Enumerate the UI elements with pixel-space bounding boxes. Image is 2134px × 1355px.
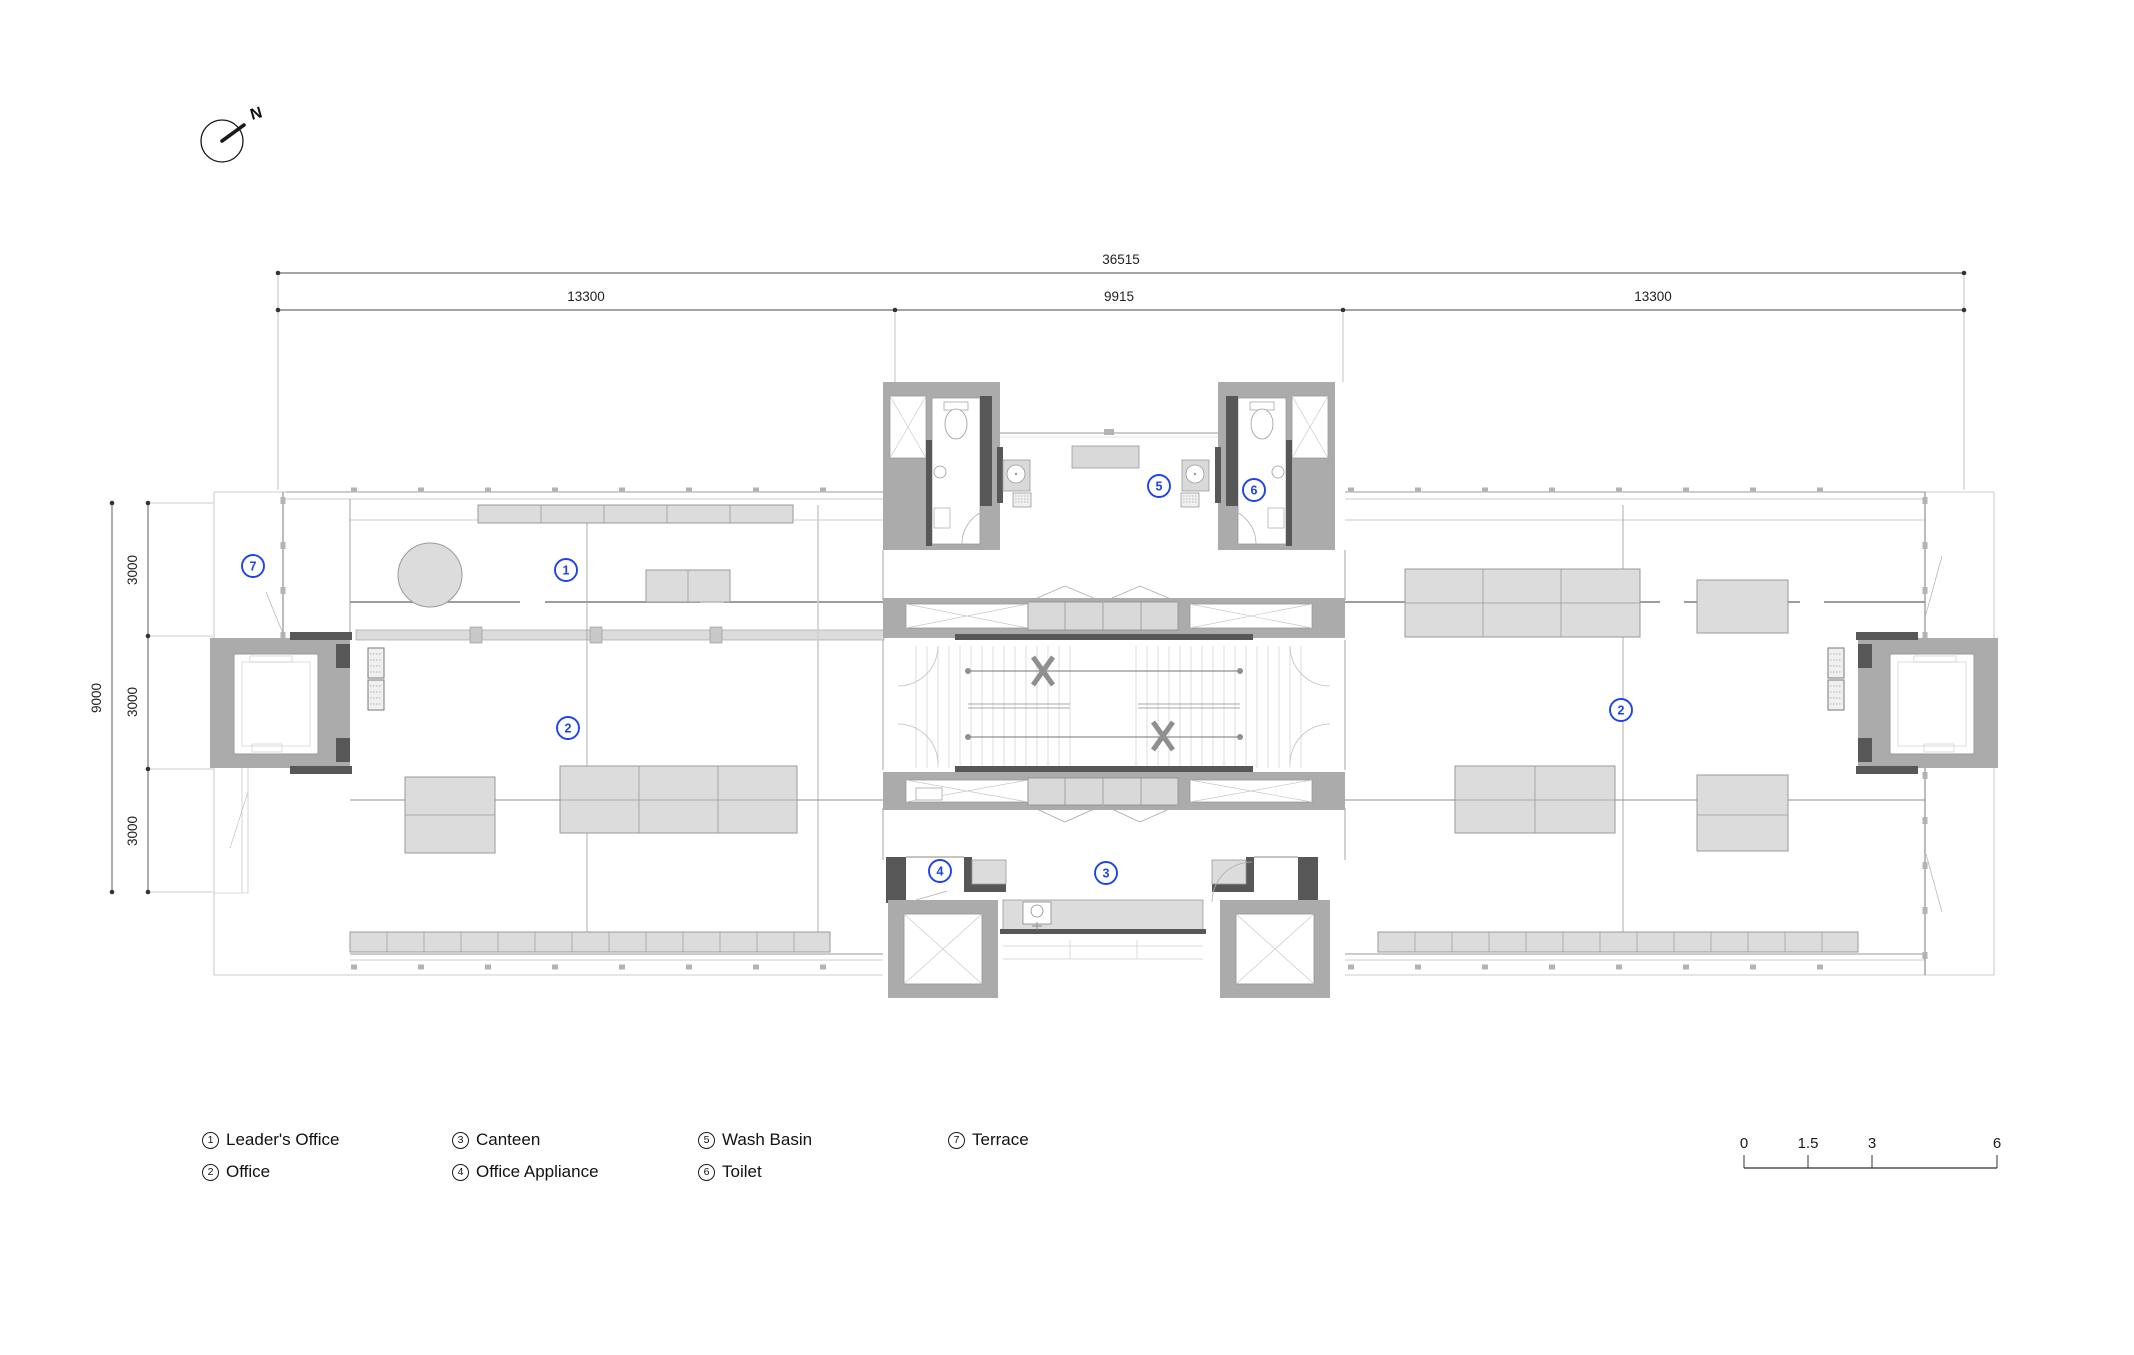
legend-number: 7	[948, 1132, 965, 1149]
svg-text:7: 7	[250, 560, 257, 574]
dim-total-depth: 9000	[89, 683, 104, 713]
dim-segment: 3000	[125, 555, 140, 585]
wash-basin-right	[1181, 460, 1209, 507]
dim-segment: 13300	[567, 289, 605, 304]
door-swing	[913, 891, 947, 901]
stair-direction-mark	[1153, 722, 1173, 750]
toilet-core-left	[883, 382, 1000, 550]
column-pillar	[368, 648, 384, 710]
stair-hall	[898, 646, 1330, 768]
svg-text:4: 4	[937, 865, 944, 879]
low-partition	[356, 630, 884, 640]
legend-item-wash-basin: 5 Wash Basin	[698, 1130, 948, 1150]
north-arrow-needle	[222, 125, 244, 141]
wash-basin-left	[1003, 460, 1031, 507]
cabinet	[972, 860, 1006, 884]
shaft-right	[1220, 900, 1330, 998]
legend-label: Office Appliance	[476, 1162, 599, 1182]
legend-item-leaders-office: 1 Leader's Office	[202, 1130, 452, 1150]
svg-text:2: 2	[1618, 704, 1625, 718]
stair-treads	[1136, 646, 1301, 768]
room-label-canteen: 3	[1095, 862, 1117, 884]
legend-label: Toilet	[722, 1162, 762, 1182]
dimension-left: 9000 3000 3000 3000	[89, 501, 213, 895]
sink-icon	[1272, 466, 1284, 478]
legend: 1 Leader's Office 2 Office 3 Canteen 4 O…	[202, 1124, 1029, 1188]
legend-number: 3	[452, 1132, 469, 1149]
svg-text:1: 1	[563, 564, 570, 578]
shaft-left	[888, 900, 998, 998]
scale-bar: 0 1.5 3 6	[1740, 1135, 2001, 1168]
legend-label: Office	[226, 1162, 270, 1182]
svg-text:2: 2	[565, 722, 572, 736]
legend-item-canteen: 3 Canteen	[452, 1130, 698, 1150]
scale-tick-label: 0	[1740, 1135, 1748, 1152]
room-label-office-west: 2	[557, 717, 579, 739]
desk-cluster	[560, 766, 797, 833]
elevator-core-west	[210, 632, 352, 774]
legend-item-terrace: 7 Terrace	[948, 1130, 1029, 1150]
legend-number: 6	[698, 1164, 715, 1181]
legend-item-office: 2 Office	[202, 1162, 452, 1182]
legend-label: Wash Basin	[722, 1130, 812, 1150]
room-label-wash-basin: 5	[1148, 475, 1170, 497]
bench	[1072, 446, 1139, 468]
sink-icon	[934, 466, 946, 478]
dim-segment: 3000	[125, 687, 140, 717]
legend-item-toilet: 6 Toilet	[698, 1162, 948, 1182]
column-pillar	[1828, 648, 1844, 710]
scale-tick-label: 3	[1868, 1135, 1876, 1152]
scale-tick-label: 6	[1993, 1135, 2001, 1152]
central-core	[883, 382, 1345, 998]
scale-tick-label: 1.5	[1798, 1135, 1819, 1152]
legend-number: 2	[202, 1164, 219, 1181]
room-label-leaders-office: 1	[555, 559, 577, 581]
svg-text:6: 6	[1251, 484, 1258, 498]
legend-number: 5	[698, 1132, 715, 1149]
dim-segment: 3000	[125, 816, 140, 846]
right-wing	[1345, 490, 1998, 975]
legend-number: 4	[452, 1164, 469, 1181]
room-label-toilet: 6	[1243, 479, 1265, 501]
dim-total-width: 36515	[1102, 252, 1140, 267]
legend-label: Leader's Office	[226, 1130, 340, 1150]
north-arrow: N	[201, 104, 264, 162]
room-label-terrace: 7	[242, 555, 264, 577]
fixture	[934, 508, 950, 528]
room-label-office-appliance: 4	[929, 860, 951, 882]
door-swing	[266, 592, 284, 636]
wc-toilet	[945, 409, 967, 439]
legend-item-office-appliance: 4 Office Appliance	[452, 1162, 698, 1182]
elevator-core-east	[1856, 632, 1998, 774]
svg-text:3: 3	[1103, 867, 1110, 881]
toilet-core-right	[1218, 382, 1335, 550]
desk	[1697, 775, 1788, 851]
desk	[1697, 580, 1788, 633]
louver-band	[350, 932, 830, 952]
north-label: N	[248, 104, 264, 124]
room-label-office-east: 2	[1610, 699, 1632, 721]
fixture	[1268, 508, 1284, 528]
round-table	[398, 543, 462, 607]
dim-segment: 13300	[1634, 289, 1672, 304]
legend-label: Terrace	[972, 1130, 1029, 1150]
lower-wall-band	[883, 766, 1345, 822]
door-swing	[898, 646, 1330, 764]
upper-wall-band	[883, 586, 1345, 640]
left-wing	[210, 490, 884, 975]
louver-band	[1378, 932, 1858, 952]
dim-segment: 9915	[1104, 289, 1134, 304]
legend-number: 1	[202, 1132, 219, 1149]
cabinet-row	[478, 505, 793, 523]
svg-text:5: 5	[1156, 480, 1163, 494]
wc-toilet	[1251, 409, 1273, 439]
legend-label: Canteen	[476, 1130, 540, 1150]
